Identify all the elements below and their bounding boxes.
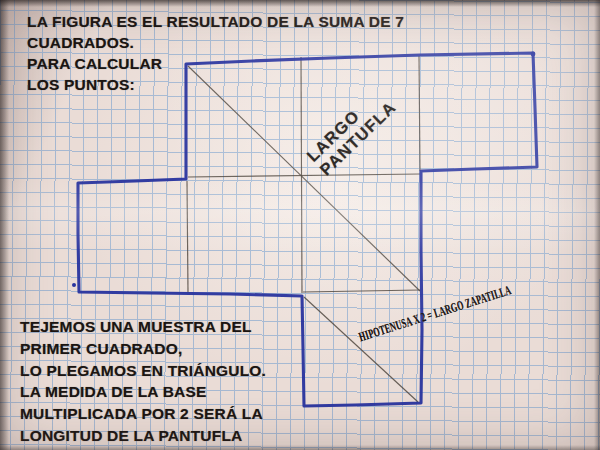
photo-edge-top — [0, 0, 600, 7]
photo-edge-left — [0, 0, 9, 450]
instructions-top-line: LOS PUNTOS: — [27, 74, 404, 95]
ink-dot — [72, 283, 76, 287]
pencil-diagonal-hipotenusa — [304, 297, 418, 402]
graph-paper-photo: LA FIGURA ES EL RESULTADO DE LA SUMA DE … — [0, 0, 600, 450]
instructions-bottom-line: LA MEDIDA DE LA BASE — [20, 381, 266, 403]
pencil-row-divider-top — [188, 174, 420, 177]
ink-blob-corner — [531, 52, 536, 57]
instructions-bottom-line: MULTIPLICADA POR 2 SERÁ LA — [20, 403, 266, 425]
pencil-row-divider-bottom — [303, 290, 420, 292]
pencil-column-divider-right — [419, 56, 420, 171]
instructions-bottom-line: LONGITUD DE LA PANTUFLA — [20, 425, 266, 447]
instructions-top: LA FIGURA ES EL RESULTADO DE LA SUMA DE … — [27, 11, 404, 95]
photo-edge-right — [594, 0, 600, 450]
photo-edge-bottom — [0, 445, 600, 450]
instructions-bottom-line: TEJEMOS UNA MUESTRA DEL — [20, 316, 266, 338]
pencil-column-divider-left — [187, 181, 188, 292]
instructions-top-line: PARA CALCULAR — [27, 53, 404, 74]
instructions-top-line: CUADRADOS. — [27, 32, 404, 53]
instructions-bottom-line: PRIMER CUADRADO, — [20, 338, 266, 360]
instructions-bottom: TEJEMOS UNA MUESTRA DEL PRIMER CUADRADO,… — [20, 316, 266, 447]
instructions-bottom-line: LO PLEGAMOS EN TRIÁNGULO. — [20, 360, 266, 382]
instructions-top-line: LA FIGURA ES EL RESULTADO DE LA SUMA DE … — [27, 11, 404, 32]
